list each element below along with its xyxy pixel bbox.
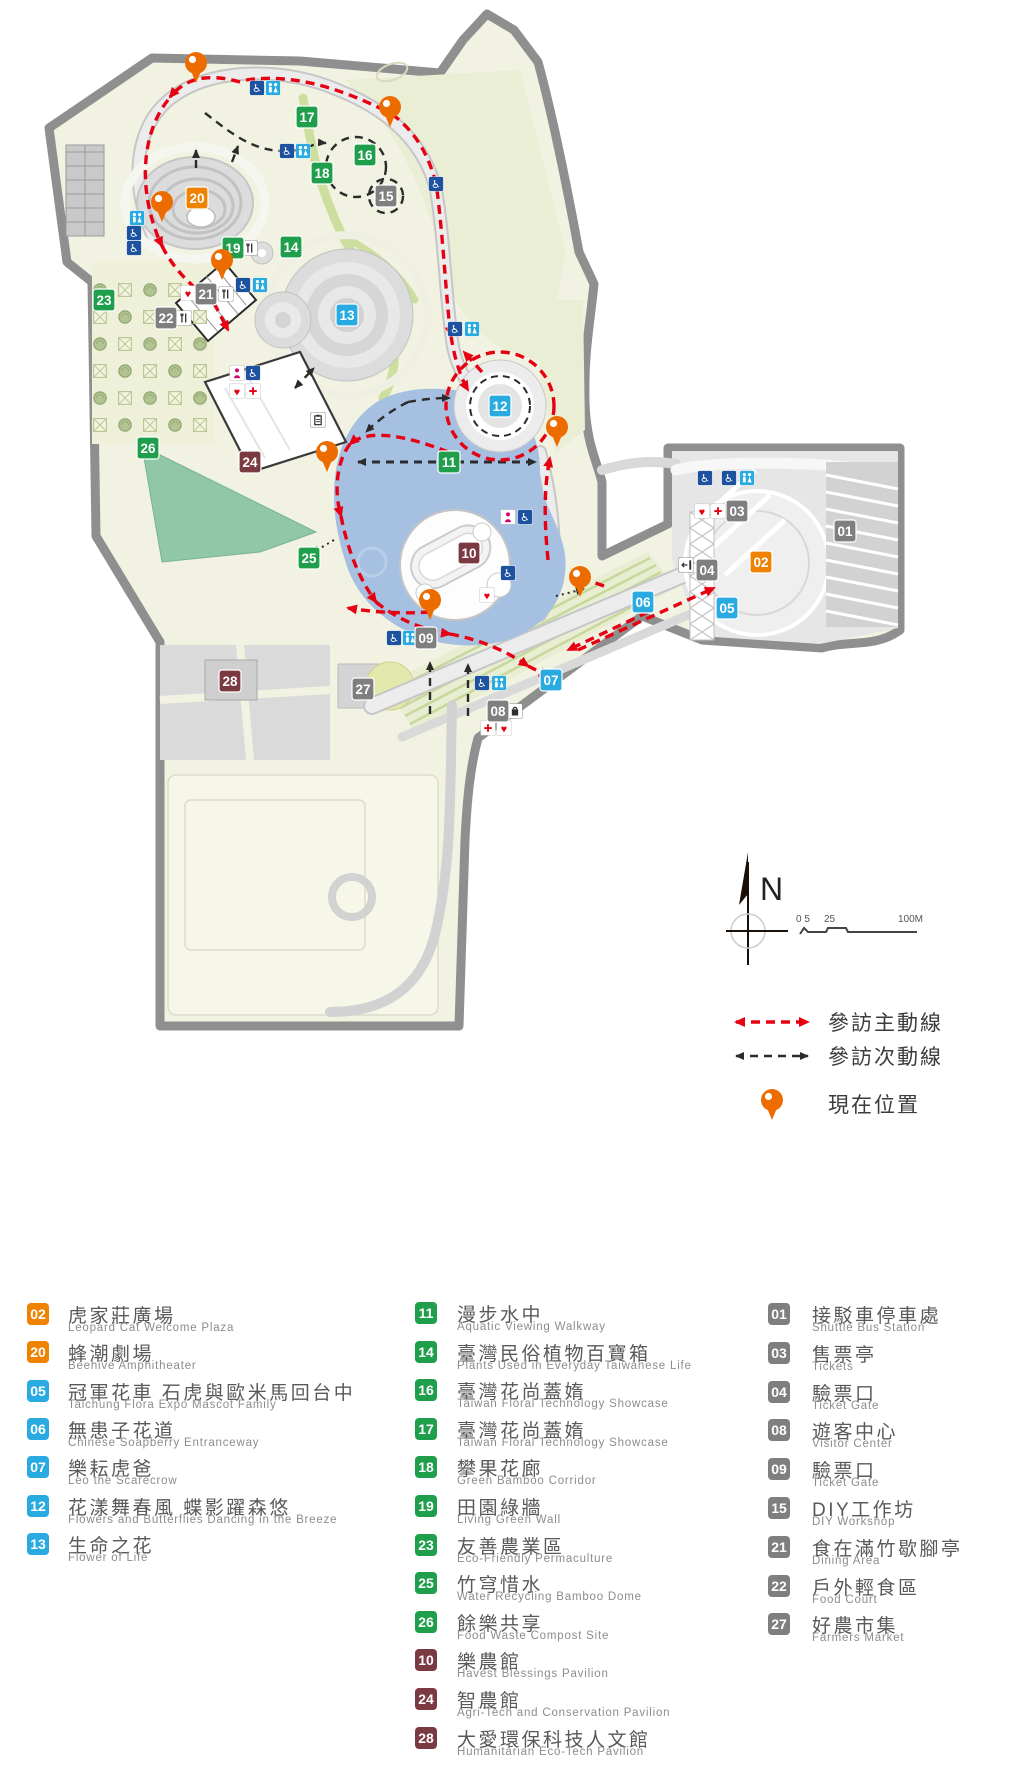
map-badge-14: 14 [280,236,302,258]
tree-icon [169,365,181,377]
legend-badge-13: 13 [27,1533,49,1555]
legend-subtitle: Dining Area [812,1555,880,1567]
svg-text:20: 20 [189,191,204,206]
legend-subtitle: DIY Workshop [812,1516,895,1528]
legend-badge-22: 22 [768,1575,790,1597]
svg-text:04: 04 [699,563,715,578]
restroom-icon [465,322,480,337]
restroom-icon [266,81,281,96]
restroom-icon [253,278,268,293]
map-badge-09: 09 [415,627,437,649]
svg-text:28: 28 [222,674,238,689]
restroom-icon [130,211,145,226]
legend-badge-09: 09 [768,1458,790,1480]
svg-text:07: 07 [543,673,558,688]
map-badge-28: 28 [219,670,241,692]
legend-subtitle: Tickets [812,1361,854,1373]
legend-subtitle: Green Bamboo Corridor [457,1475,597,1487]
map-badge-16: 16 [354,144,376,166]
legend-badge-26: 26 [415,1611,437,1633]
legend-subtitle: Visitor Center [812,1438,893,1450]
planting-plot-icon [169,338,182,351]
legend-subtitle: Water Recycling Bamboo Dome [457,1591,642,1603]
legend-subtitle: Aquatic Viewing Walkway [457,1321,606,1333]
harvest-pavilion-building [400,510,511,620]
wheelchair-icon [698,471,713,486]
legend-badge-19: 19 [415,1495,437,1517]
tree-icon [94,392,106,404]
field-outline [168,775,438,1015]
planting-plot-icon [194,419,207,432]
map-badge-22: 22 [155,307,177,329]
svg-text:21: 21 [198,287,214,302]
legend-badge-10: 10 [415,1649,437,1671]
map-badge-24: 24 [239,451,261,473]
expo-guide-map-page: ♿ ♥ [0,0,1024,1774]
legend-badge-08: 08 [768,1419,790,1441]
svg-text:11: 11 [442,455,457,470]
svg-text:06: 06 [635,595,651,610]
wheelchair-icon [448,322,463,337]
tree-icon [144,338,156,350]
tree-icon [119,365,131,377]
legend-subtitle: Leo the Scarecrow [68,1475,178,1487]
legend-subtitle: Leopard Cat Welcome Plaza [68,1322,234,1334]
route-legend: 參訪主動線 參訪次動線 現在位置 [736,1012,943,1120]
map-badge-13: 13 [336,304,358,326]
map-badge-17: 17 [296,106,318,128]
legend-badge-23: 23 [415,1534,437,1556]
svg-text:08: 08 [490,704,506,719]
nursing-room-icon [501,510,516,525]
map-badge-05: 05 [716,597,738,619]
legend-subtitle: Havest Blessings Pavilion [457,1668,609,1680]
svg-text:100M: 100M [898,914,923,925]
wheelchair-icon [127,241,142,256]
legend-subtitle: Food Waste Compost Site [457,1630,609,1642]
map-badge-01: 01 [834,520,856,542]
tree-icon [169,419,181,431]
exit-icon [679,558,694,573]
svg-text:14: 14 [283,240,299,255]
legend-badge-03: 03 [768,1342,790,1364]
legend-badge-25: 25 [415,1572,437,1594]
svg-text:01: 01 [837,524,853,539]
planting-plot-icon [169,392,182,405]
wheelchair-icon [722,471,737,486]
tree-icon [144,392,156,404]
legend-subtitle: Taiwan Floral Technology Showcase [457,1398,669,1410]
svg-text:18: 18 [314,166,330,181]
restroom-icon [296,144,311,159]
svg-text:24: 24 [242,455,258,470]
map-svg: ♿ ♥ [0,0,1024,1160]
legend-badge-05: 05 [27,1380,49,1402]
svg-text:25: 25 [824,914,836,925]
planting-plot-icon [194,365,207,378]
planting-plot-icon [94,311,107,324]
legend-badge-28: 28 [415,1727,437,1749]
legend-badge-07: 07 [27,1456,49,1478]
wheelchair-icon [429,177,444,192]
svg-text:05: 05 [719,601,735,616]
current-location-pin-legend [761,1089,783,1120]
legend-badge-12: 12 [27,1495,49,1517]
tree-icon [194,338,206,350]
wheelchair-icon [280,144,295,159]
planting-plot-icon [144,419,157,432]
map-badge-04: 04 [696,559,718,581]
legend-badge-06: 06 [27,1418,49,1440]
legend-badge-17: 17 [415,1418,437,1440]
svg-text:25: 25 [301,551,317,566]
tree-icon [194,392,206,404]
svg-text:03: 03 [729,504,745,519]
map-badge-23: 23 [93,289,115,311]
legend-badge-21: 21 [768,1536,790,1558]
legend-badge-15: 15 [768,1497,790,1519]
tree-icon [144,284,156,296]
wheelchair-icon [127,226,142,241]
aed-icon [695,504,710,519]
wheelchair-icon [475,676,490,691]
wheelchair-icon [246,366,261,381]
legend-subtitle: Agri-Tech and Conservation Pavilion [457,1707,670,1719]
tree-icon [94,338,106,350]
planting-plot-icon [94,365,107,378]
tree-icon [119,311,131,323]
legend-badge-14: 14 [415,1341,437,1363]
food-icon [243,241,258,256]
route-main-label: 參訪主動線 [828,1012,943,1035]
map-badge-10: 10 [458,542,480,564]
planting-plot-icon [119,392,132,405]
svg-text:27: 27 [355,682,370,697]
planting-plot-icon [119,338,132,351]
svg-text:13: 13 [339,308,355,323]
wheelchair-icon [387,631,402,646]
svg-text:10: 10 [461,546,476,561]
info-board-icon [311,413,326,428]
restroom-icon [492,676,507,691]
restroom-icon [740,471,755,486]
map-badge-25: 25 [298,547,320,569]
map-badge-20: 20 [186,187,208,209]
legend-badge-18: 18 [415,1456,437,1478]
legend-subtitle: Ticket Gate [812,1400,879,1412]
tree-icon [119,419,131,431]
legend-badge-01: 01 [768,1303,790,1325]
planting-plot-icon [144,365,157,378]
legend-badge-11: 11 [415,1302,437,1324]
aed-icon [230,384,245,399]
current-location-label: 現在位置 [828,1094,920,1117]
legend-badge-04: 04 [768,1381,790,1403]
map-badge-18: 18 [311,162,333,184]
planting-plot-icon [194,311,207,324]
legend-badge-27: 27 [768,1613,790,1635]
map-badge-03: 03 [726,500,748,522]
legend-subtitle: Shuttle Bus Station [812,1322,925,1334]
food-icon [219,287,234,302]
legend-subtitle: Plants Used in Everyday Taiwanese Life [457,1360,692,1372]
shop-icon [508,704,523,719]
svg-text:23: 23 [96,293,112,308]
wheelchair-icon [250,81,265,96]
planting-plot-icon [119,284,132,297]
map-badge-07: 07 [540,669,562,691]
map-badge-26: 26 [137,437,159,459]
legend-subtitle: Flowers and Butterflies Dancing in the B… [68,1514,337,1526]
route-secondary-label: 參訪次動線 [828,1046,943,1069]
legend-subtitle: Chinese Soapberry Entranceway [68,1437,259,1449]
north-arrow: N [726,852,788,965]
first-aid-icon [711,504,726,519]
parking-structure [66,145,104,236]
food-icon [177,311,192,326]
parking-lot [826,462,898,627]
aed-icon [181,286,196,301]
planting-plot-icon [94,419,107,432]
svg-text:09: 09 [418,631,433,646]
wheelchair-icon [501,566,516,581]
map-badge-06: 06 [632,591,654,613]
svg-text:17: 17 [299,110,314,125]
legend-subtitle: Ticket Gate [812,1477,879,1489]
legend-badge-24: 24 [415,1688,437,1710]
wheelchair-icon [236,278,251,293]
legend-badge-16: 16 [415,1379,437,1401]
aed-icon [497,721,512,736]
map-badge-08: 08 [487,700,509,722]
legend-subtitle: Farmers Market [812,1632,904,1644]
svg-text:22: 22 [158,311,173,326]
first-aid-icon [481,721,496,736]
map-badge-21: 21 [195,283,217,305]
svg-text:02: 02 [753,555,768,570]
legend-badge-02: 02 [27,1303,49,1325]
legend-subtitle: Living Green Wall [457,1514,561,1526]
svg-text:0 5: 0 5 [796,914,810,925]
first-aid-icon [246,384,261,399]
legend-subtitle: Eco-Friendly Permaculture [457,1553,613,1565]
legend-subtitle: Taiwan Floral Technology Showcase [457,1437,669,1449]
legend-subtitle: Flower of Life [68,1552,148,1564]
map-badge-11: 11 [438,451,460,473]
map-badge-02: 02 [750,551,772,573]
svg-text:15: 15 [378,189,394,204]
legend-subtitle: Food Court [812,1594,878,1606]
map-badge-27: 27 [352,678,374,700]
aed-icon [480,588,495,603]
north-label: N [760,871,783,907]
svg-text:12: 12 [492,399,507,414]
svg-text:26: 26 [140,441,156,456]
legend-subtitle: Humanitarian Eco-Tech Pavilion [457,1746,644,1758]
nursing-room-icon [230,366,245,381]
legend-subtitle: Taichung Flora Expo Mascot Family [68,1399,277,1411]
planting-plot-icon [169,284,182,297]
map-badge-12: 12 [489,395,511,417]
scale-bar: 0 5 25 100M [796,914,923,934]
legend-badge-20: 20 [27,1341,49,1363]
svg-text:16: 16 [357,148,373,163]
wheelchair-icon [518,510,533,525]
map-badge-15: 15 [375,185,397,207]
legend-subtitle: Beehive Amphitheater [68,1360,197,1372]
